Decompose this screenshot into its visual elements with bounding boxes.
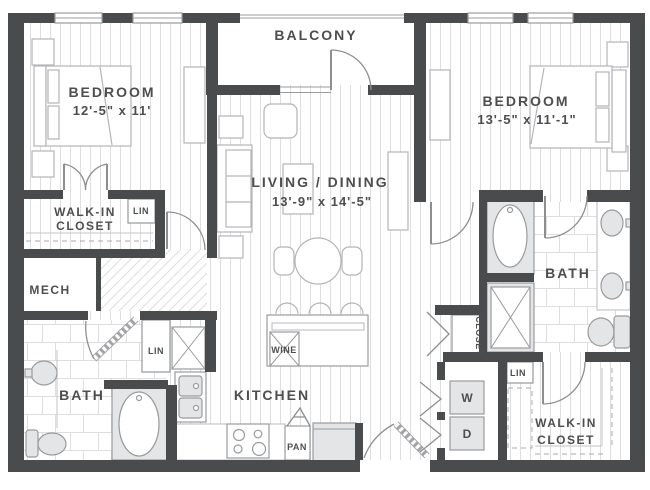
toilet-tank — [26, 430, 38, 457]
label-washer: W — [461, 391, 473, 405]
wall-mech-bottom — [8, 311, 88, 320]
island-counter-edge — [272, 323, 364, 330]
headboard — [612, 70, 626, 152]
balcony-wall-left — [206, 13, 218, 95]
floor-hall-left-hatch — [101, 250, 207, 311]
wall-living-bedroom-left — [207, 95, 217, 258]
dims-bedroom-left: 12'-5" x 11' — [73, 103, 152, 118]
label-pan: PAN — [287, 442, 307, 452]
dims-living-dining: 13'-9" x 14'-5" — [272, 194, 372, 209]
wall-mech-right — [96, 258, 101, 311]
label-bath-left: BATH — [59, 387, 105, 403]
wall-exterior-left — [8, 13, 24, 472]
nightstand — [607, 42, 628, 67]
wall-exterior-bottom-left — [8, 460, 360, 472]
balcony-wall-bottom-left — [206, 85, 280, 95]
dresser — [430, 70, 450, 140]
label-walkin-left-2: CLOSET — [56, 219, 114, 233]
wall-closet-left-top-a — [24, 190, 63, 199]
sink-drain — [194, 406, 199, 411]
dresser — [184, 67, 205, 143]
toilet-bowl — [38, 433, 66, 455]
wall-laundry-east — [498, 362, 507, 460]
floorplan: BALCONY BEDROOM 12'-5" x 11' BEDROOM 13'… — [0, 0, 650, 490]
label-closet: CLOSET — [474, 316, 484, 356]
nightstand — [32, 39, 54, 65]
label-kitchen: KITCHEN — [234, 387, 310, 403]
wall-hall-closet-top — [435, 305, 485, 315]
wall-bedroom-right-south-b — [587, 190, 630, 202]
label-living-dining: LIVING / DINING — [251, 174, 388, 190]
label-wine: WINE — [271, 345, 297, 355]
wall-entry-jamb — [355, 423, 363, 460]
bathtub — [493, 205, 527, 267]
label-walkin-left-1: WALK-IN — [54, 205, 116, 219]
wall-tub-left-top — [104, 380, 168, 389]
wall-bath-right-south-b — [585, 352, 630, 362]
wall-laundry-stub-b — [437, 412, 445, 420]
tv-console — [388, 152, 408, 230]
nightstand — [32, 151, 54, 177]
label-dryer: D — [463, 427, 472, 441]
balcony-wall-bottom-right — [368, 85, 426, 95]
pillow — [48, 70, 59, 103]
tub-drain — [137, 396, 142, 401]
tub-drain — [508, 208, 513, 213]
wall-tub-shower-divider — [483, 273, 534, 282]
side-table — [219, 236, 243, 258]
pillow — [596, 108, 609, 142]
wall-living-bedroom-right — [414, 13, 426, 202]
bathroom-sink — [601, 273, 623, 299]
label-walkin-right-1: WALK-IN — [535, 416, 597, 430]
wall-bath-kitchen — [166, 385, 177, 460]
pillow — [596, 72, 609, 106]
side-table — [219, 116, 243, 138]
wall-kitchen-east-stub — [205, 311, 216, 372]
toilet-tank — [614, 316, 630, 348]
bathroom-sink — [31, 361, 57, 385]
armchair — [264, 104, 297, 138]
label-lin-bedroom: LIN — [133, 206, 149, 216]
wall-exterior-bottom-right — [430, 460, 645, 472]
label-bedroom-right: BEDROOM — [482, 93, 569, 109]
sofa-cushions — [226, 150, 251, 227]
wall-exterior-right — [630, 13, 645, 472]
label-bedroom-left: BEDROOM — [68, 84, 155, 100]
label-lin-laundry: LIN — [510, 368, 526, 378]
label-balcony: BALCONY — [274, 27, 357, 43]
floorplan-drawing: BALCONY BEDROOM 12'-5" x 11' BEDROOM 13'… — [0, 0, 650, 490]
dining-table — [295, 238, 341, 284]
label-lin-hall: LIN — [148, 346, 164, 356]
burner — [234, 445, 242, 453]
headboard — [34, 66, 46, 146]
faucet — [25, 369, 32, 377]
wall-laundry-stub-c — [437, 448, 445, 460]
bathtub — [119, 392, 159, 456]
balcony-railing — [218, 15, 414, 18]
wall-closet-left-right — [155, 190, 165, 258]
wall-bath-right-south-a — [443, 352, 543, 362]
label-walkin-right-2: CLOSET — [537, 433, 595, 447]
dining-chair — [342, 247, 362, 275]
burner — [253, 443, 266, 456]
burner — [254, 430, 262, 438]
wall-bedroom-right-south-a — [479, 190, 543, 202]
toilet-bowl — [588, 318, 614, 346]
pillow — [48, 106, 59, 139]
wall-closet-left-bottom — [24, 249, 155, 258]
bathroom-sink — [601, 210, 623, 236]
sink-drain — [194, 384, 199, 389]
label-bath-right: BATH — [545, 265, 591, 281]
burner — [234, 430, 245, 441]
dining-chair — [274, 247, 294, 275]
wall-laundry-stub-a — [437, 362, 445, 380]
label-mech: MECH — [29, 283, 70, 297]
dims-bedroom-right: 13'-5" x 11'-1" — [477, 112, 576, 127]
